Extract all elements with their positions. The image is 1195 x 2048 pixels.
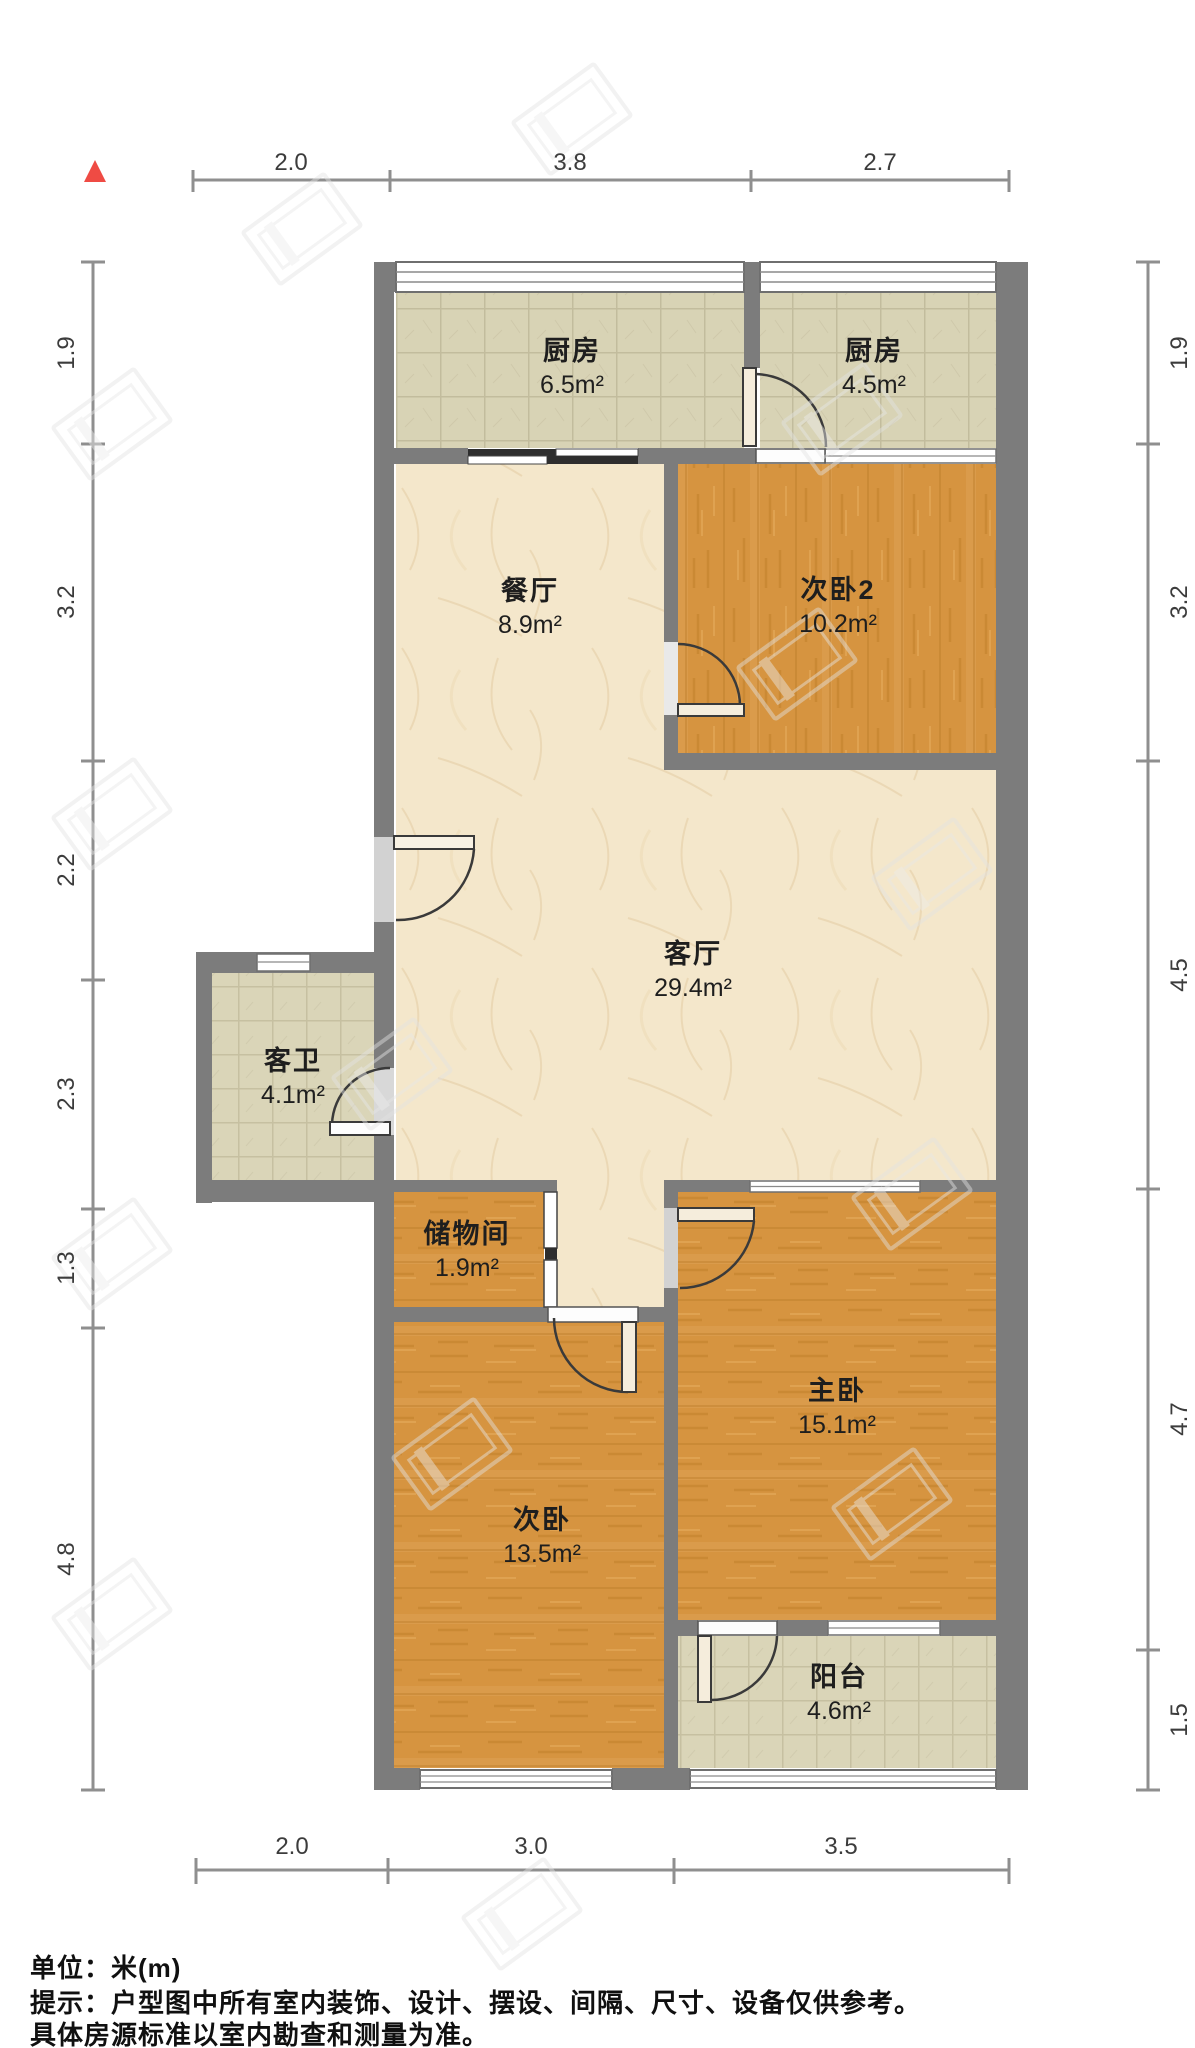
wall-bedroom-balcony	[664, 1636, 678, 1768]
wall-bath-east-lower	[374, 1135, 394, 1180]
footer-unit-line: 单位：米(m)	[30, 1948, 181, 1985]
window-master-south	[828, 1621, 940, 1635]
wall-master-west-lower	[664, 1288, 678, 1620]
window-master-north	[750, 1181, 920, 1192]
floorplan-page: 厨房 6.5m² 厨房 4.5m² 餐厅 8.9m² 次卧2 10.2m² 客厅…	[0, 0, 1195, 2048]
window-kitchen-east	[760, 262, 996, 292]
wall-master-south-3	[940, 1620, 1028, 1636]
wall-bedroom-north-1	[374, 1307, 548, 1322]
window-bedroom-south	[420, 1770, 612, 1788]
window-kitchen-east-south	[825, 449, 996, 463]
wall-master-south-2	[777, 1620, 828, 1636]
dim-left-2: 2.2	[53, 853, 81, 886]
wall-west-mid	[374, 922, 394, 952]
dim-right-2: 4.5	[1166, 958, 1194, 991]
dim-top-2: 2.7	[863, 149, 896, 177]
floor-storage	[394, 1192, 544, 1307]
dim-left-5: 4.8	[53, 1542, 81, 1575]
floors	[212, 292, 996, 1768]
dim-bottom-2: 3.5	[824, 1833, 857, 1861]
floor-kitchen-east	[760, 292, 996, 448]
floor-hallway	[557, 1180, 664, 1307]
wall-east-outer	[996, 262, 1028, 1790]
floor-master-bedroom	[678, 1192, 996, 1620]
wall-west-upper	[374, 262, 394, 837]
dim-right-3: 4.7	[1166, 1402, 1194, 1435]
wall-bath-west	[196, 952, 212, 1203]
dim-bottom-1: 3.0	[514, 1833, 547, 1861]
north-indicator-icon	[84, 160, 106, 182]
dim-left-1: 3.2	[53, 585, 81, 618]
window-kitchen-west	[396, 262, 744, 292]
wall-storage-west	[374, 1180, 394, 1307]
dim-left-0: 1.9	[53, 336, 81, 369]
wall-master-west-upper	[664, 1180, 678, 1208]
floor-guest-bath	[212, 973, 374, 1180]
dim-top-0: 2.0	[274, 149, 307, 177]
dim-right-1: 3.2	[1166, 585, 1194, 618]
wall-bedroom2-south	[664, 753, 1028, 770]
wall-master-south-1	[664, 1620, 698, 1636]
wall-bath-south	[196, 1180, 394, 1202]
wall-bedroom2-west-upper	[664, 448, 678, 642]
floorplan-drawing	[0, 0, 1195, 2048]
wall-kitchen-south-2	[638, 448, 756, 464]
window-balcony-south	[690, 1770, 996, 1788]
dim-left-4: 1.3	[53, 1251, 81, 1284]
wall-kitchen-divider	[744, 262, 760, 368]
dim-top-1: 3.8	[553, 149, 586, 177]
wall-master-north-2	[920, 1180, 1028, 1192]
wall-bedroom-north-2	[638, 1307, 664, 1322]
wall-bath-east-upper	[374, 952, 394, 1068]
floor-balcony	[678, 1636, 996, 1768]
wall-kitchen-south-1	[394, 448, 468, 464]
dim-right-4: 1.5	[1166, 1703, 1194, 1736]
wall-south-2	[612, 1768, 690, 1790]
dim-right-0: 1.9	[1166, 336, 1194, 369]
footer-disclaimer-2: 具体房源标准以室内勘查和测量为准。	[30, 2015, 489, 2048]
door-kitchen-west-sliding	[468, 449, 638, 464]
wall-bedroom-west	[374, 1322, 394, 1768]
dim-bottom-0: 2.0	[275, 1833, 308, 1861]
wall-south-1	[374, 1768, 420, 1790]
door-storage	[544, 1192, 557, 1307]
floor-kitchen-west	[396, 292, 744, 448]
wall-storage-north	[374, 1180, 557, 1192]
window-guest-bath	[257, 954, 310, 971]
dim-left-3: 2.3	[53, 1077, 81, 1110]
wall-bedroom2-west-lower	[664, 715, 678, 753]
